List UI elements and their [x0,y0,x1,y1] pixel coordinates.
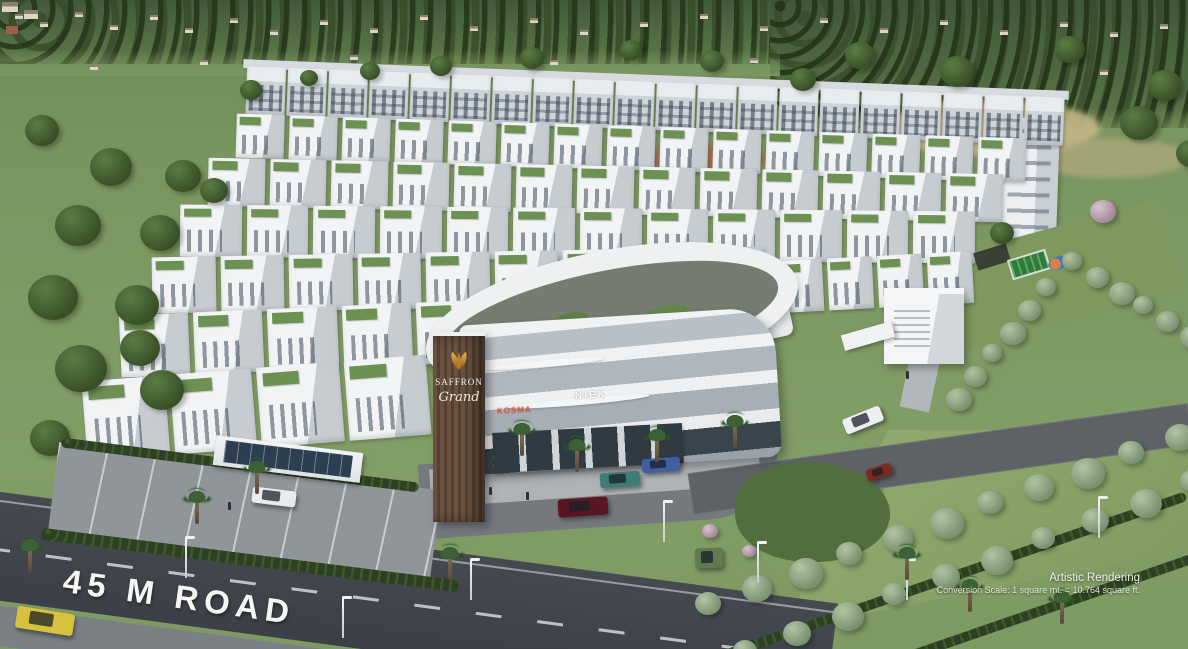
distant-house [760,26,768,31]
townhouse-unit [220,255,285,312]
avenue-tree [930,508,964,539]
tree [990,222,1014,244]
tree [200,178,228,203]
townhouse-unit [696,84,737,133]
pedestrian [906,371,909,379]
townhouse-unit [236,114,285,159]
townhouse-unit [256,361,345,447]
townhouse-unit [737,85,778,134]
townhouse-unit [288,115,337,160]
tree [620,40,642,60]
flower-shrub [742,545,756,557]
townhouse-unit [1024,96,1065,145]
car-green-van [695,548,724,569]
townhouse-unit [778,87,819,136]
townhouse-unit [269,159,327,208]
distant-house [1000,30,1008,35]
tree [790,68,816,91]
car-windshield [701,551,713,563]
distant-house [40,22,48,27]
brand-subname: Grand [438,390,479,405]
avenue-tree [1180,326,1188,349]
avenue-tree [946,388,972,411]
car-white-suv [841,405,884,435]
tree [90,148,132,186]
street-light [663,502,665,542]
tree [115,285,159,325]
tree [55,205,101,246]
avenue-tree [836,542,862,565]
brand-tower: SAFFRON Grand [433,332,485,522]
avenue-tree [1018,300,1041,321]
palm-tree [195,500,199,524]
distant-house [90,65,98,70]
distant-building [6,26,18,34]
townhouse-unit [655,82,696,131]
tree [120,330,160,366]
avenue-tree [1024,474,1054,501]
distant-house [880,28,888,33]
townhouse-unit [827,256,875,310]
avenue-tree [1133,296,1153,314]
townhouse-unit [392,162,450,211]
tree [55,345,107,392]
car-windshield [608,474,625,484]
townhouse-unit [180,205,242,258]
street-light [470,560,472,600]
gate-house [884,288,964,364]
distant-house [750,58,758,63]
avenue-tree [789,558,823,589]
pedestrian [228,502,231,510]
avenue-tree [1081,508,1109,533]
disclaimer-line2: Conversion Scale: 1 square mt. = 10.764 … [880,585,1140,595]
townhouse-unit [246,205,308,258]
flower-shrub [702,524,718,538]
townhouse-unit [659,127,708,172]
avenue-tree [832,602,864,631]
distant-house [350,55,358,60]
avenue-tree [695,592,721,615]
disclaimer: Artistic Rendering Conversion Scale: 1 s… [880,572,1140,595]
avenue-tree [1036,278,1056,296]
car-blue [642,457,681,474]
tree [1148,70,1182,101]
townhouse-unit [357,253,422,310]
distant-house [550,60,558,65]
townhouse-unit [860,90,901,139]
avenue-tree [1130,489,1162,518]
brand-name: SAFFRON [435,377,483,387]
palm-tree [655,438,659,462]
tree [430,56,452,76]
avenue-tree [964,366,987,387]
avenue-tree [1118,441,1144,464]
townhouse-unit [491,76,532,125]
distant-house [150,15,158,20]
distant-house [940,20,948,25]
distant-house [320,20,328,25]
tree [700,50,724,72]
tree [520,47,544,69]
car-teal [600,471,641,489]
project-aerial-rendering: SAFFRON Grand NIEK KOSMA 45 M ROAD Artis… [0,0,1188,649]
townhouse-unit [532,77,573,126]
distant-house [640,22,648,27]
distant-house [230,18,238,23]
townhouse-unit [152,256,217,313]
tree [28,275,78,320]
townhouse-unit [289,254,354,311]
townhouse-unit [553,124,602,169]
avenue-tree [1031,527,1055,549]
townhouse-unit [331,160,389,209]
avenue-tree [783,621,811,646]
distant-building [2,2,18,12]
flowering-tree [1090,200,1116,223]
tree [1055,36,1085,63]
storefront-sign: NIEK [575,389,607,402]
townhouse-unit [515,164,573,213]
palm-tree [448,556,452,580]
townhouse-unit [450,74,491,123]
avenue-tree [1109,282,1135,305]
distant-house [530,18,538,23]
palm-tree [28,548,32,572]
car-windshield [28,611,54,628]
townhouse-unit [573,79,614,128]
townhouse-unit [193,309,265,374]
tree [845,42,875,69]
tree [360,62,380,80]
distant-house [1110,32,1118,37]
townhouse-unit [409,73,450,122]
avenue-tree [1071,458,1105,489]
tree [25,115,59,146]
distant-house [15,14,23,19]
distant-house [185,28,193,33]
distant-house [1060,22,1068,27]
avenue-tree [1062,252,1082,270]
car-windshield [569,500,591,512]
distant-house [370,28,378,33]
street-light [1098,498,1100,538]
street-light [342,598,344,638]
car-windshield [871,467,884,477]
distant-house [1100,70,1108,75]
car-windshield [851,413,870,428]
tree [140,215,180,251]
palm-tree [733,424,737,448]
palm-tree [255,470,259,494]
avenue-tree [982,344,1002,362]
avenue-tree [977,491,1003,514]
palm-tree [1060,600,1064,624]
saffron-flower-icon [446,348,472,372]
distant-house [470,26,478,31]
distant-house [700,14,708,19]
townhouse-unit [901,91,942,140]
palm-tree [575,448,579,472]
townhouse-unit [454,163,512,212]
car-windshield [261,490,281,502]
townhouse-unit [313,206,375,259]
street-light [757,543,759,583]
townhouse-unit [606,125,655,170]
avenue-tree [981,546,1013,575]
pedestrian [489,487,492,495]
tree [300,70,318,86]
avenue-tree [1000,322,1026,345]
pedestrian [526,492,529,500]
townhouse-unit [712,129,761,174]
distant-house [110,25,118,30]
distant-house [75,12,83,17]
townhouse-unit [394,119,443,164]
townhouse-unit [341,117,390,162]
townhouse-unit [500,122,549,167]
street-light [185,538,187,578]
distant-building [24,10,38,19]
car-maroon [557,496,608,517]
distant-house [820,18,828,23]
avenue-tree [1165,424,1188,451]
distant-house [420,15,428,20]
distant-house [1160,24,1168,29]
palm-tree [520,432,524,456]
tree [1120,106,1158,140]
tree [165,160,201,192]
townhouse-unit [614,80,655,129]
avenue-tree [1156,311,1179,332]
disclaimer-line1: Artistic Rendering [880,572,1140,584]
avenue-tree [1086,267,1109,288]
distant-house [580,30,588,35]
distant-house [270,30,278,35]
tree [240,80,262,100]
distant-house [200,60,208,65]
tree [940,56,974,87]
storefront-sign-red: KOSMA [497,405,532,416]
townhouse-unit [819,88,860,137]
townhouse-unit [447,120,496,165]
tree [140,370,184,410]
